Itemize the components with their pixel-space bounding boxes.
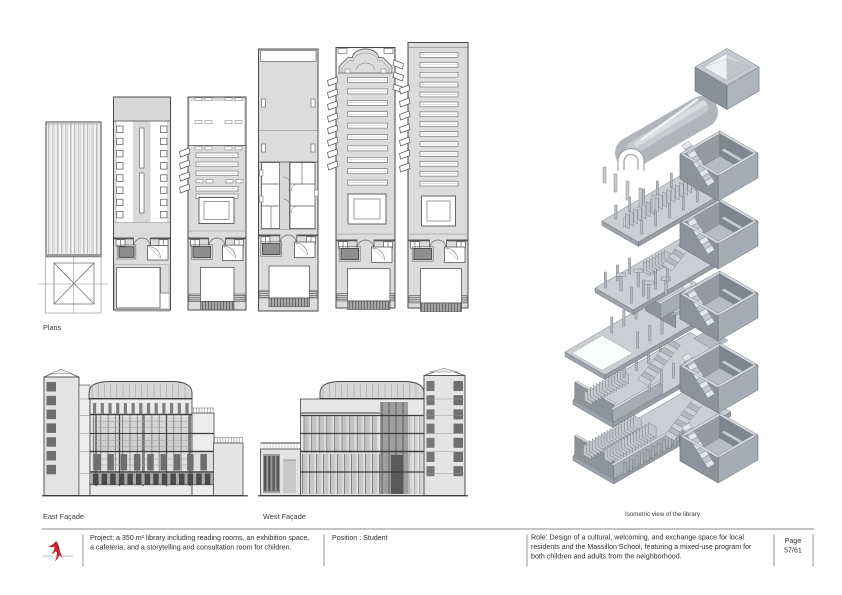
svg-text:a cafeteria, and a storytellin: a cafeteria, and a storytelling and cons… xyxy=(90,544,292,552)
svg-text:residents and the Massillon Sc: residents and the Massillon School, feat… xyxy=(531,543,752,551)
svg-text:Page: Page xyxy=(785,537,802,545)
svg-text:West Façade: West Façade xyxy=(263,512,306,521)
svg-text:atelier: atelier xyxy=(43,554,54,558)
svg-text:Position : Student: Position : Student xyxy=(332,534,388,542)
svg-text:Role: Design of a cultural, we: Role: Design of a cultural, welcoming, a… xyxy=(531,534,744,542)
svg-text:Isometric view of the library: Isometric view of the library xyxy=(625,511,701,518)
svg-text:both children and adults from: both children and adults from the neighb… xyxy=(531,553,682,561)
svg-text:Project: a 350 m² library incl: Project: a 350 m² library including read… xyxy=(90,534,309,542)
svg-text:studio: studio xyxy=(63,554,73,558)
svg-text:57/61: 57/61 xyxy=(784,547,802,555)
svg-text:East Façade: East Façade xyxy=(43,512,84,521)
svg-text:Plans: Plans xyxy=(43,323,62,332)
